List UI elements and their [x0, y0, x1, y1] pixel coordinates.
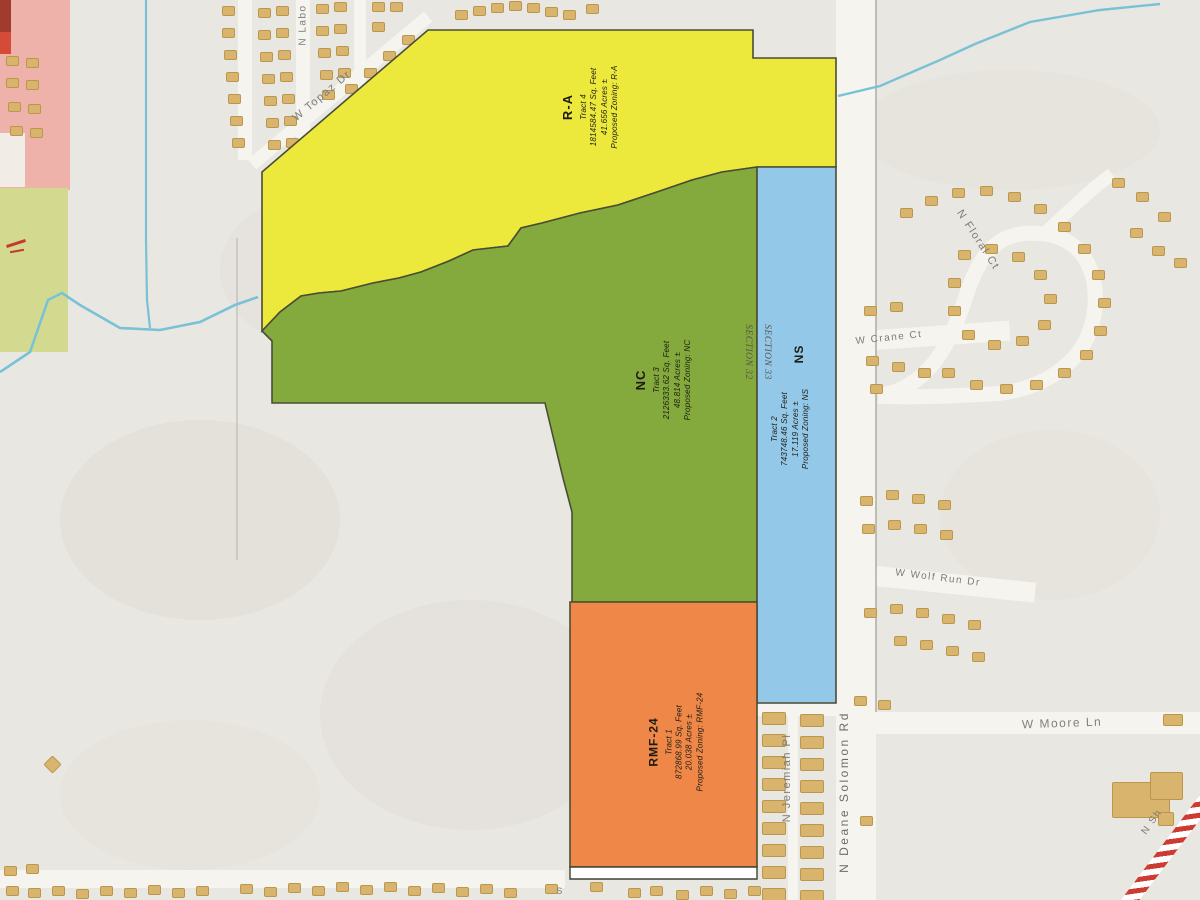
parcel-rmf24-row-strip — [570, 867, 757, 879]
street-label-bottom-partial: S — [556, 886, 564, 896]
parcel-title-ra: R-A — [560, 65, 577, 148]
parcel-title-rmf24: RMF-24 — [646, 693, 662, 792]
parcel-title-ns: NS — [792, 345, 808, 364]
section-33-label: SECTION 33 — [762, 324, 772, 379]
section-32-label: SECTION 32 — [743, 324, 753, 379]
parcel-label-ns-title: NS — [792, 345, 810, 364]
street-label-n-labo: N Labo — [298, 4, 309, 45]
zoning-map: R-A Tract 4 1814584.47 Sq. Feet 41.656 A… — [0, 0, 1200, 900]
parcel-label-nc: NC Tract 3 2126333.62 Sq. Feet 48.814 Ac… — [633, 340, 693, 421]
parcel-title-nc: NC — [633, 340, 650, 421]
street-label-n-deane-solomon: N Deane Solomon Rd — [837, 711, 851, 873]
street-label-n-jeremiah: N Jeremiah Pl — [781, 734, 793, 823]
parcel-label-ra: R-A Tract 4 1814584.47 Sq. Feet 41.656 A… — [560, 65, 620, 148]
parcel-label-rmf24: RMF-24 Tract 1 872868.99 Sq. Feet 20.038… — [646, 693, 705, 792]
street-label-w-moore: W Moore Ln — [1022, 715, 1103, 732]
parcel-label-ns-details: Tract 2 743748.46 Sq. Feet 17.119 Acres … — [770, 389, 812, 469]
